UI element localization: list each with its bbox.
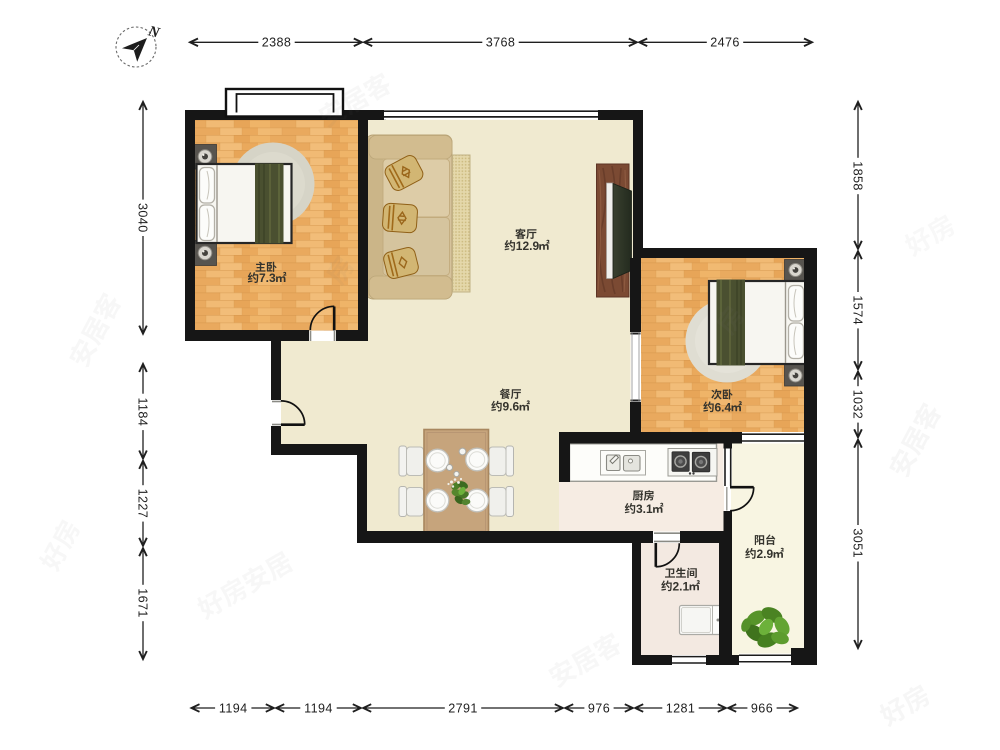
svg-text:6.4: 6.4 [715, 400, 732, 414]
svg-text:9.6: 9.6 [503, 400, 520, 414]
svg-text:976: 976 [588, 701, 610, 715]
svg-text:2388: 2388 [262, 36, 292, 50]
svg-text:2476: 2476 [710, 36, 740, 50]
svg-text:1574: 1574 [851, 295, 865, 325]
svg-text:1281: 1281 [666, 701, 696, 715]
svg-text:3.1: 3.1 [636, 502, 653, 516]
svg-text:3768: 3768 [486, 36, 516, 50]
svg-text:966: 966 [751, 701, 773, 715]
svg-text:3051: 3051 [851, 528, 865, 558]
svg-text:2791: 2791 [448, 701, 478, 715]
svg-text:3040: 3040 [136, 203, 150, 233]
svg-text:1227: 1227 [136, 489, 150, 519]
svg-text:1184: 1184 [136, 398, 150, 427]
svg-text:12.9: 12.9 [516, 239, 540, 253]
svg-text:1858: 1858 [851, 161, 865, 191]
svg-text:2.1: 2.1 [673, 579, 690, 593]
svg-text:7.3: 7.3 [259, 271, 276, 285]
svg-text:2.9: 2.9 [757, 547, 774, 561]
svg-text:1032: 1032 [851, 390, 865, 420]
svg-text:1194: 1194 [219, 701, 248, 715]
svg-text:1194: 1194 [304, 701, 333, 715]
svg-text:1671: 1671 [136, 588, 150, 618]
